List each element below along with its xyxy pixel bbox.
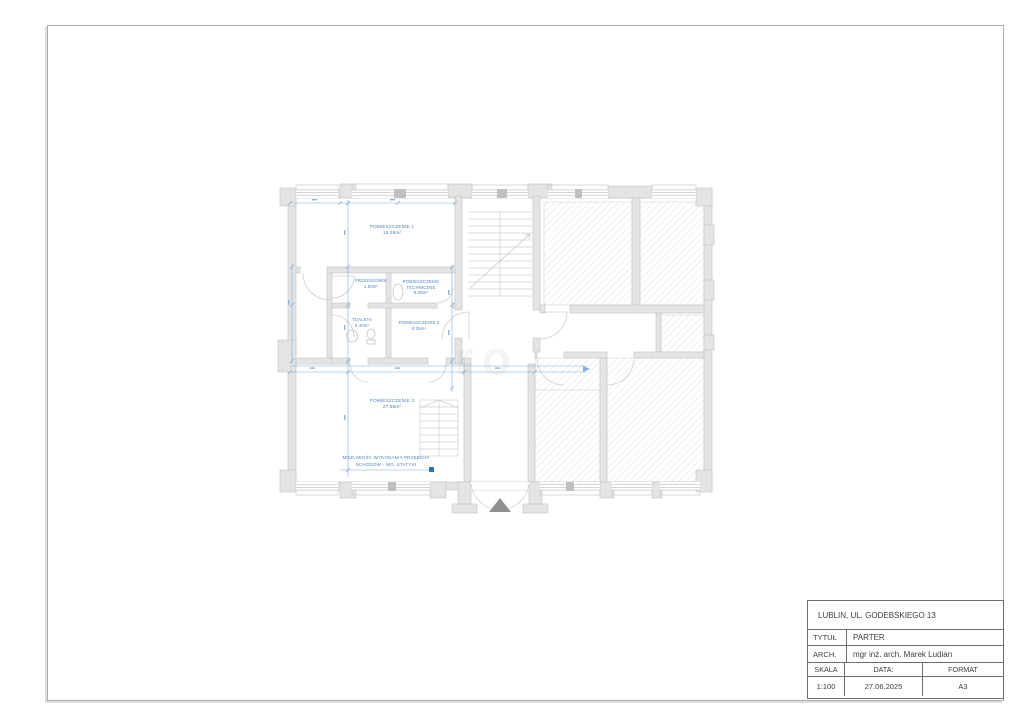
title-block: LUBLIN, UL. GODEBSKIEGO 13 TYTUŁ PARTER … [807, 600, 1004, 699]
scale-value: 1:100 [808, 677, 845, 696]
plan-note: MOŻLIWOŚĆ WYKONANIA PRZEBICIA SCHODÓW - … [316, 455, 456, 469]
arch-label: ARCH. [808, 646, 847, 662]
arch-value: mgr inż. arch. Marek Ludian [847, 646, 1003, 662]
date-label: DATA: [845, 663, 923, 676]
entrance-arrow [489, 498, 511, 512]
title-label: TYTUŁ [808, 630, 847, 645]
drawing-sheet: ro POMIESZCZENIE 1 15.35m² PRZEDSIONEK 1… [0, 0, 1024, 723]
room-label-pomieszczenie-2: POMIESZCZENIE 2 8.25m² [379, 320, 459, 331]
format-label: FORMAT [923, 663, 1003, 676]
watermark: ro [455, 332, 519, 387]
room-label-pomieszczenie-1: POMIESZCZENIE 1 15.35m² [332, 224, 452, 236]
title-block-address: LUBLIN, UL. GODEBSKIEGO 13 [808, 601, 1003, 629]
room-label-pom-techniczne: POMIESZCZENIE TECHNICZNE 8.05m² [391, 279, 451, 296]
title-value: PARTER [847, 630, 1003, 645]
scale-label: SKALA [808, 663, 845, 676]
room-label-pomieszczenie-3: POMIESZCZENIE 3 27.58m² [332, 398, 452, 410]
date-value: 27.06.2025 [845, 677, 923, 696]
format-value: A3 [923, 677, 1003, 696]
